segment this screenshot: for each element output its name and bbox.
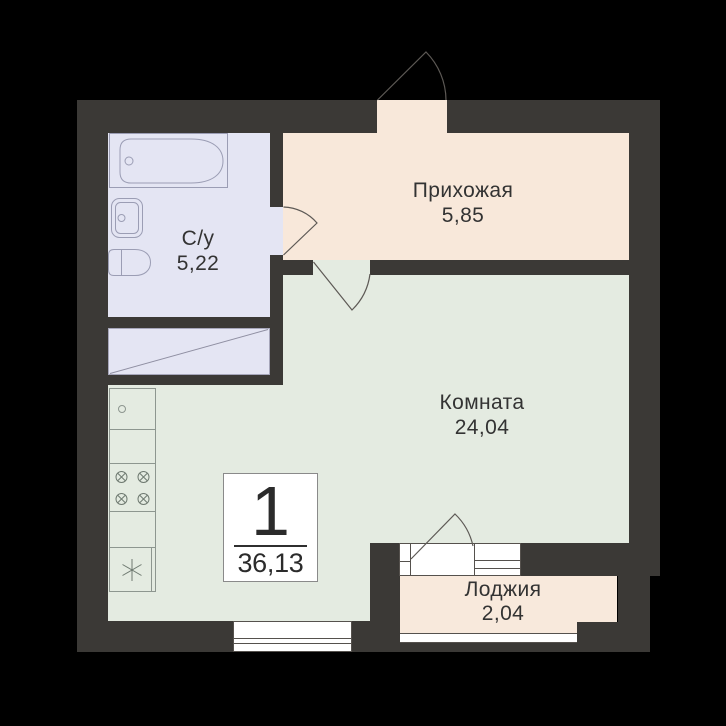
room-door-gap — [313, 260, 370, 275]
room-area: 24,04 — [455, 415, 510, 440]
room-window — [233, 621, 352, 652]
wall-bath-bottom — [108, 317, 270, 328]
wall-right — [629, 133, 660, 576]
badge-divider — [234, 545, 307, 547]
loggia-label: Лоджия — [465, 577, 542, 602]
wall-bottom-right-block — [577, 622, 650, 652]
wall-loggia-left — [370, 543, 400, 652]
wall-left — [77, 100, 108, 652]
wall-room-loggia — [520, 543, 629, 576]
entrance-doorway — [377, 100, 447, 133]
closet-niche — [108, 328, 270, 375]
entrance-door-arc — [378, 52, 447, 100]
loggia-area: 2,04 — [482, 601, 524, 626]
unit-info-badge: 1 36,13 — [223, 473, 318, 582]
wall-top-left — [77, 100, 377, 133]
floor-plan: Прихожая 5,85 С/у 5,22 Комната 24,04 Лод… — [0, 0, 726, 726]
wall-bottom-b — [352, 621, 370, 652]
total-area: 36,13 — [237, 548, 303, 578]
bathroom-door-gap — [270, 207, 283, 255]
rooms-count: 1 — [251, 480, 290, 542]
wall-bath-divider-bottom — [270, 255, 283, 385]
hallway-area: 5,85 — [442, 203, 484, 228]
room-label: Комната — [439, 390, 524, 415]
wall-top-right — [447, 100, 660, 133]
bathroom-area: 5,22 — [177, 251, 219, 276]
wall-loggia-bottom — [400, 643, 577, 652]
wall-bottom-a — [108, 621, 233, 652]
wall-right-lower — [618, 576, 650, 622]
bathroom-label: С/у — [182, 226, 215, 251]
hallway-label: Прихожая — [413, 178, 514, 203]
wall-hall-room-right — [370, 260, 629, 275]
loggia-glazing — [400, 633, 577, 643]
balcony-door-window-unit — [399, 543, 521, 576]
wall-hall-room-left — [283, 260, 313, 275]
wall-bath-divider-top — [270, 133, 283, 207]
wall-closet-bottom — [108, 375, 270, 385]
bathroom-floor — [108, 133, 270, 317]
